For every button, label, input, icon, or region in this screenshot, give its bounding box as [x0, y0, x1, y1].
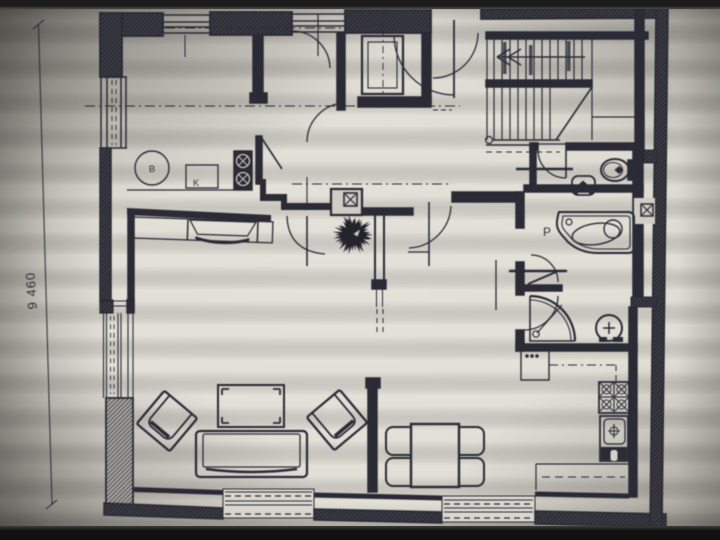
svg-text:K: K	[193, 178, 199, 188]
svg-text:P: P	[543, 225, 551, 239]
svg-text:9 460: 9 460	[22, 271, 40, 310]
svg-text:B: B	[149, 164, 155, 175]
